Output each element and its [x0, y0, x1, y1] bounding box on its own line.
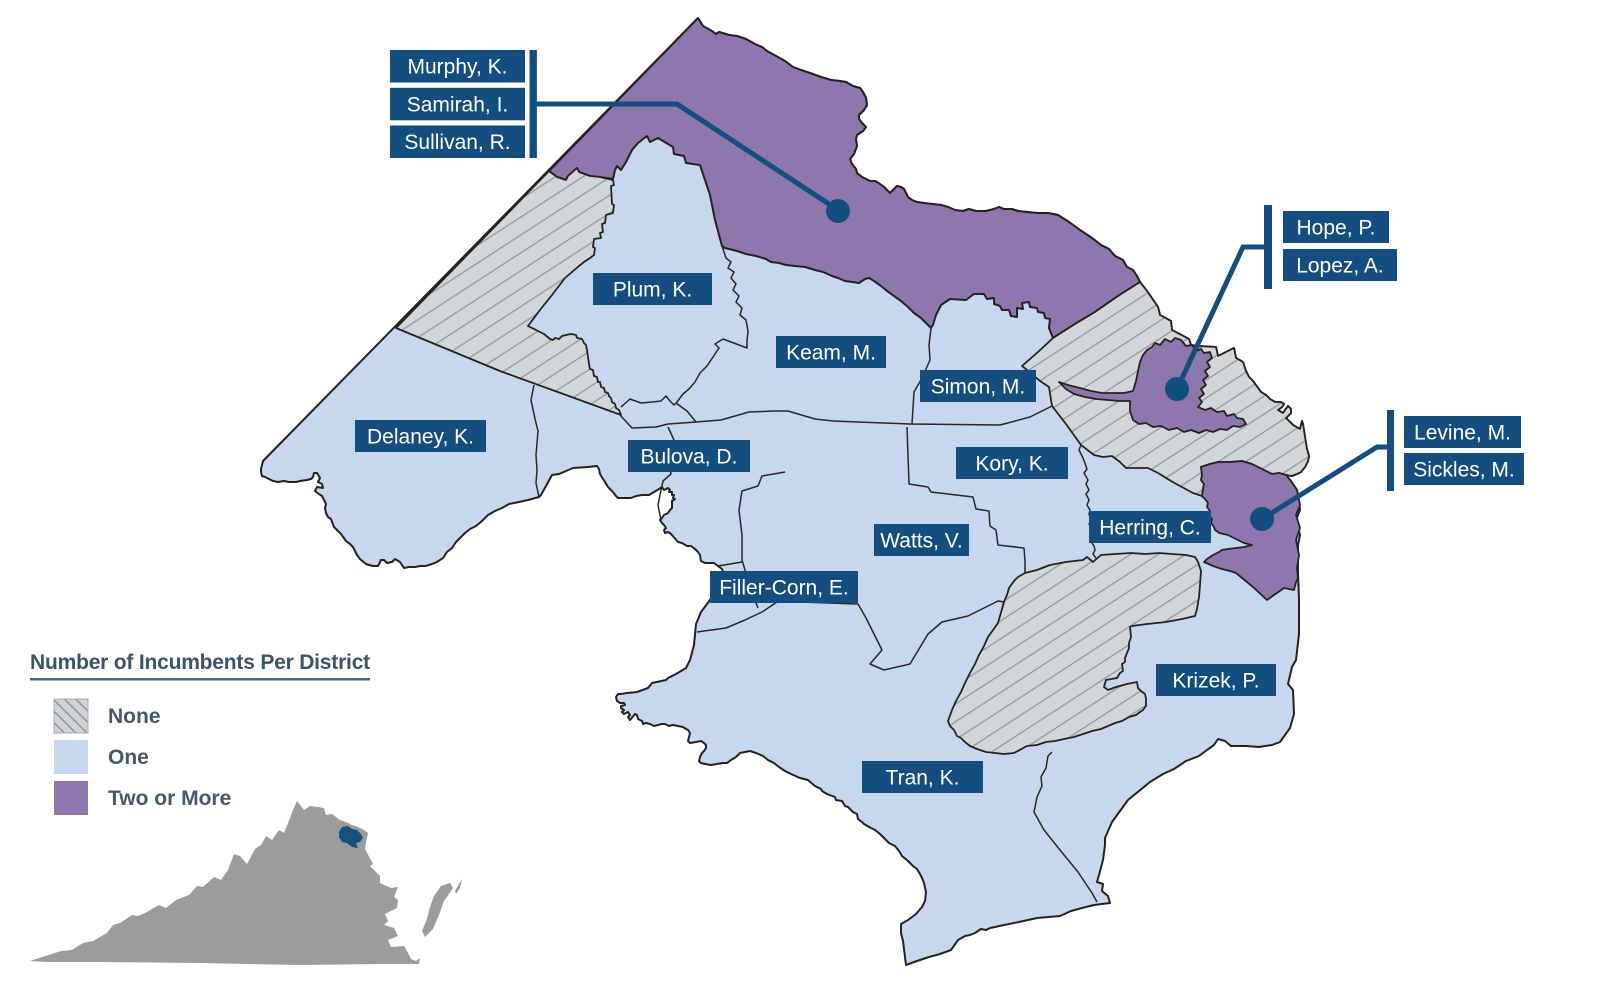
svg-text:Watts, V.: Watts, V. — [880, 530, 962, 553]
svg-text:Two or More: Two or More — [108, 787, 231, 810]
svg-text:Murphy, K.: Murphy, K. — [408, 56, 508, 79]
svg-text:Simon, M.: Simon, M. — [931, 376, 1026, 399]
svg-text:Number of Incumbents Per Distr: Number of Incumbents Per District — [30, 651, 370, 674]
svg-text:Herring, C.: Herring, C. — [1099, 517, 1201, 540]
svg-text:Bulova, D.: Bulova, D. — [641, 446, 738, 469]
svg-text:One: One — [108, 746, 149, 769]
svg-text:Samirah, I.: Samirah, I. — [407, 93, 509, 116]
svg-text:Krizek, P.: Krizek, P. — [1172, 670, 1259, 693]
svg-text:Keam, M.: Keam, M. — [786, 342, 876, 365]
svg-text:Filler-Corn, E.: Filler-Corn, E. — [719, 577, 849, 600]
svg-text:Hope, P.: Hope, P. — [1296, 217, 1375, 240]
svg-text:Plum, K.: Plum, K. — [613, 279, 692, 302]
svg-text:Levine, M.: Levine, M. — [1414, 422, 1511, 445]
svg-text:Sickles, M.: Sickles, M. — [1413, 459, 1515, 482]
svg-text:None: None — [108, 705, 161, 728]
svg-text:Tran, K.: Tran, K. — [886, 767, 960, 790]
svg-text:Kory, K.: Kory, K. — [975, 453, 1048, 476]
svg-text:Lopez, A.: Lopez, A. — [1296, 255, 1384, 278]
svg-text:Delaney, K.: Delaney, K. — [367, 426, 474, 449]
svg-text:Sullivan, R.: Sullivan, R. — [404, 131, 510, 154]
